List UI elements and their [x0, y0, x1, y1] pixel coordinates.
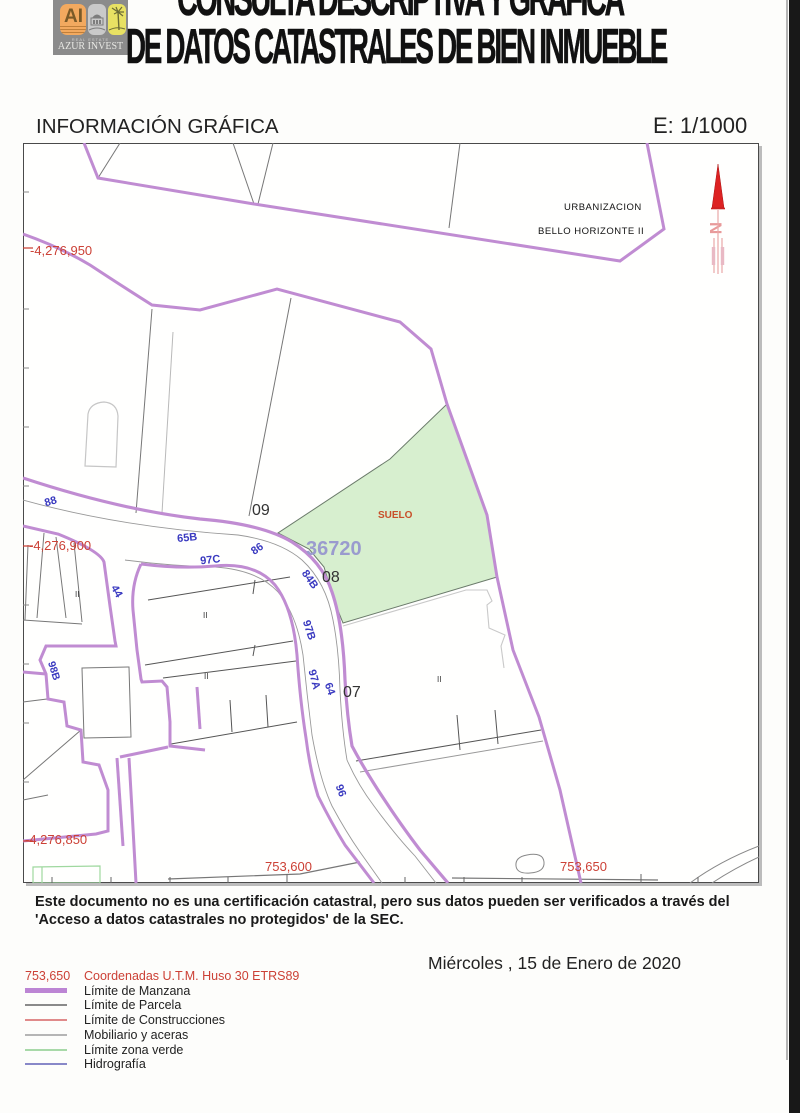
svg-text:753,650: 753,650: [560, 859, 607, 874]
svg-text:II: II: [204, 672, 208, 681]
svg-text:II: II: [75, 590, 79, 599]
svg-text:86: 86: [249, 541, 266, 558]
svg-text:84B: 84B: [299, 568, 320, 591]
svg-text:-4,276,850: -4,276,850: [25, 832, 87, 847]
svg-text:96: 96: [333, 783, 348, 799]
svg-text:36720: 36720: [306, 538, 362, 560]
svg-text:44: 44: [108, 583, 125, 600]
svg-text:URBANIZACION: URBANIZACION: [564, 202, 642, 213]
svg-text:64: 64: [322, 681, 338, 697]
svg-text:-4,276,900: -4,276,900: [29, 538, 91, 553]
svg-text:BELLO HORIZONTE II: BELLO HORIZONTE II: [538, 226, 644, 237]
svg-text:97B: 97B: [300, 619, 318, 642]
svg-text:-4,276,950: -4,276,950: [30, 243, 92, 258]
svg-text:07: 07: [343, 684, 361, 701]
svg-text:97C: 97C: [200, 553, 221, 567]
svg-text:II: II: [203, 611, 207, 620]
svg-text:88: 88: [43, 494, 58, 509]
svg-text:08: 08: [322, 569, 340, 586]
svg-text:753,600: 753,600: [265, 859, 312, 874]
svg-text:N: N: [706, 222, 725, 234]
svg-text:II: II: [437, 675, 441, 684]
svg-text:65B: 65B: [177, 531, 198, 545]
svg-text:97A: 97A: [305, 668, 322, 691]
svg-text:SUELO: SUELO: [378, 510, 413, 521]
svg-text:09: 09: [252, 502, 270, 519]
